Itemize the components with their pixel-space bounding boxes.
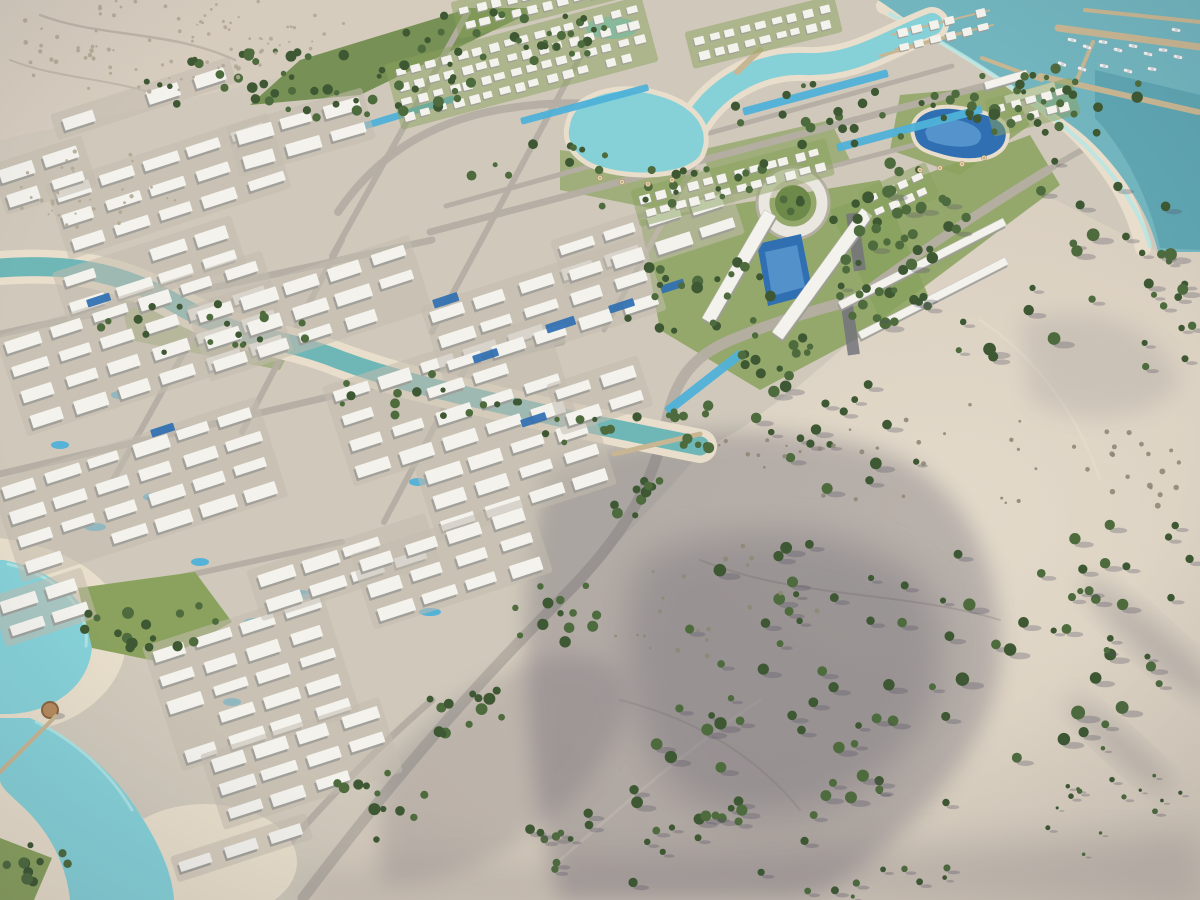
masterplan-aerial-scene: [0, 0, 1200, 900]
vignette: [0, 0, 1200, 900]
aerial-render-stage: High-angle aerial 3D rendering of a larg…: [0, 0, 1200, 900]
